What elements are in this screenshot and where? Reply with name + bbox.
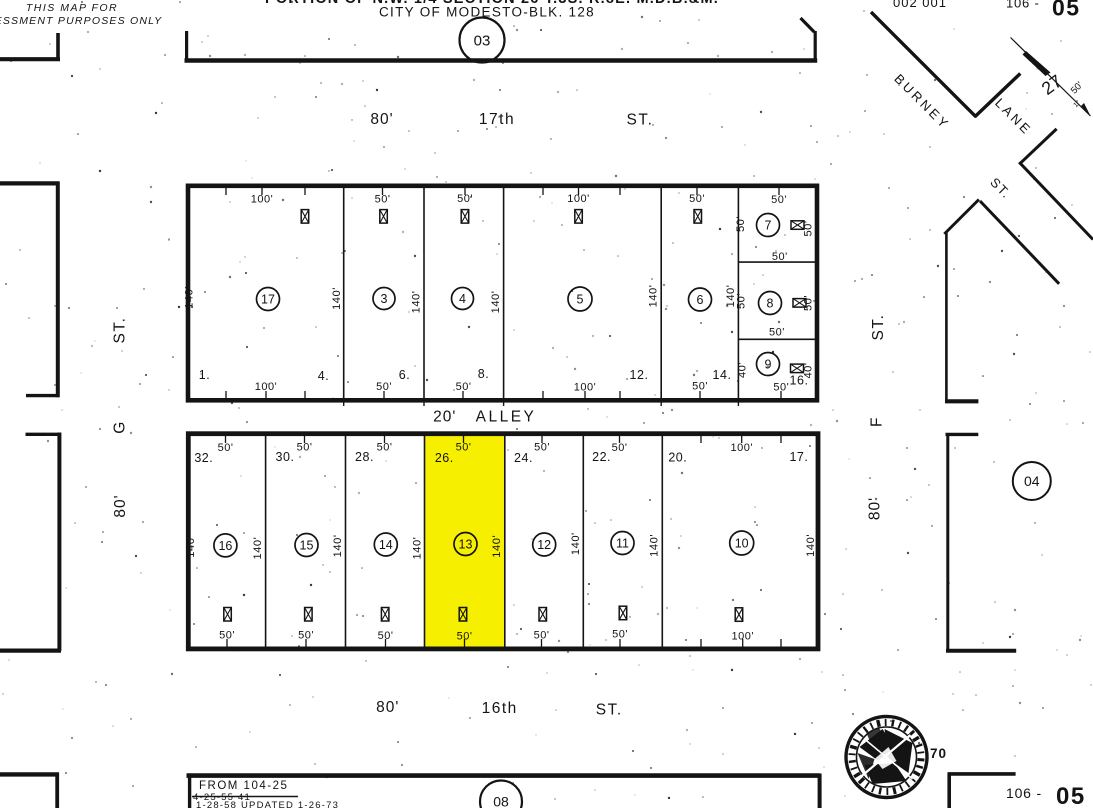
svg-text:14.: 14.: [713, 368, 732, 382]
svg-text:30.: 30.: [276, 450, 295, 464]
svg-text:32.: 32.: [194, 451, 213, 465]
svg-text:50': 50': [692, 381, 708, 393]
svg-text:13: 13: [459, 538, 473, 552]
svg-text:100': 100': [251, 194, 273, 206]
svg-text:FROM 104-25: FROM 104-25: [199, 780, 288, 792]
svg-text:50': 50': [218, 442, 234, 454]
svg-text:50': 50': [375, 194, 391, 206]
svg-text:140': 140': [184, 286, 196, 309]
svg-text:1-28-58 UPDATED 1-26-73: 1-28-58 UPDATED 1-26-73: [196, 800, 339, 808]
svg-text:50': 50': [457, 631, 473, 643]
svg-text:ST.: ST.: [596, 702, 623, 719]
svg-text:22.: 22.: [592, 450, 611, 464]
svg-text:4.: 4.: [318, 369, 329, 383]
svg-text:50': 50': [378, 630, 394, 642]
svg-text:12.: 12.: [630, 368, 649, 382]
svg-text:140': 140': [649, 534, 661, 557]
svg-text:70: 70: [930, 746, 947, 761]
svg-text:6.: 6.: [399, 368, 410, 382]
svg-text:11: 11: [616, 537, 629, 551]
svg-text:8.: 8.: [478, 367, 489, 381]
svg-text:80': 80': [867, 497, 884, 520]
svg-text:80': 80': [370, 111, 393, 128]
svg-text:6: 6: [697, 293, 704, 307]
svg-text:50': 50': [297, 442, 313, 454]
svg-text:50': 50': [612, 629, 628, 641]
svg-text:26.: 26.: [435, 451, 454, 465]
svg-text:100': 100': [730, 442, 752, 454]
svg-text:4: 4: [459, 292, 466, 306]
svg-text:140': 140': [648, 285, 660, 308]
svg-text:17: 17: [261, 293, 275, 307]
svg-text:F: F: [869, 416, 886, 427]
svg-text:140': 140': [332, 534, 344, 557]
svg-text:140': 140': [411, 291, 423, 314]
svg-text:17.: 17.: [789, 450, 808, 464]
svg-text:50': 50': [735, 216, 747, 232]
svg-text:ALLEY: ALLEY: [476, 409, 537, 426]
svg-text:50': 50': [773, 382, 789, 394]
svg-text:16: 16: [218, 539, 232, 553]
svg-text:50': 50': [769, 327, 785, 339]
svg-text:THIS MAP FOR: THIS MAP FOR: [26, 2, 118, 14]
svg-text:40': 40': [737, 362, 749, 378]
svg-text:12: 12: [537, 538, 551, 552]
svg-text:50': 50': [456, 381, 472, 393]
svg-text:140': 140': [805, 534, 817, 557]
svg-text:50': 50': [534, 442, 550, 454]
svg-text:50': 50': [298, 630, 314, 642]
svg-text:80': 80': [112, 494, 129, 517]
svg-text:140': 140': [252, 537, 264, 560]
svg-text:28.: 28.: [355, 450, 374, 464]
svg-text:20': 20': [433, 409, 456, 426]
svg-text:100': 100': [567, 193, 589, 205]
svg-text:50': 50': [772, 251, 788, 263]
svg-text:ST.: ST.: [870, 314, 887, 341]
svg-text:100': 100': [574, 382, 596, 394]
svg-text:14: 14: [379, 538, 393, 552]
svg-text:G: G: [112, 420, 129, 434]
svg-text:140': 140': [412, 537, 424, 560]
svg-text:5: 5: [577, 293, 584, 307]
svg-text:24.: 24.: [514, 451, 533, 465]
svg-text:50': 50': [612, 442, 628, 454]
svg-text:140': 140': [490, 291, 502, 314]
svg-text:50': 50': [736, 293, 748, 309]
svg-text:50': 50': [803, 295, 815, 311]
svg-text:50': 50': [219, 630, 235, 642]
svg-text:50': 50': [376, 381, 392, 393]
svg-text:20.: 20.: [668, 451, 687, 465]
svg-text:05: 05: [1052, 0, 1081, 21]
svg-text:16th: 16th: [482, 700, 518, 717]
svg-text:ASSESSMENT PURPOSES ONLY: ASSESSMENT PURPOSES ONLY: [0, 15, 162, 27]
svg-text:7: 7: [765, 219, 772, 233]
svg-text:08: 08: [493, 794, 509, 808]
svg-text:100': 100': [731, 631, 753, 643]
svg-text:ST.: ST.: [627, 112, 654, 129]
svg-text:50': 50': [457, 193, 473, 205]
svg-text:05: 05: [1056, 783, 1086, 808]
svg-text:8: 8: [767, 297, 774, 311]
svg-text:ST.: ST.: [112, 317, 129, 344]
svg-text:50': 50': [689, 193, 705, 205]
svg-text:15: 15: [300, 539, 314, 553]
svg-text:50': 50': [534, 630, 550, 642]
svg-text:140': 140': [491, 535, 503, 558]
svg-text:03: 03: [474, 32, 491, 49]
svg-text:17th: 17th: [479, 111, 515, 128]
svg-text:16.: 16.: [790, 374, 809, 388]
svg-text:50': 50': [771, 194, 787, 206]
svg-text:04: 04: [1024, 473, 1040, 489]
svg-text:100': 100': [255, 381, 277, 393]
svg-text:3: 3: [381, 292, 388, 306]
svg-text:002 001: 002 001: [893, 0, 947, 10]
svg-text:106 -: 106 -: [1006, 785, 1042, 801]
svg-text:50': 50': [377, 442, 393, 454]
svg-text:80': 80': [376, 699, 399, 716]
svg-text:10: 10: [735, 537, 749, 551]
svg-text:9: 9: [765, 358, 772, 372]
svg-text:140': 140': [185, 535, 197, 558]
svg-text:50': 50': [456, 442, 472, 454]
svg-text:1.: 1.: [199, 368, 210, 382]
svg-text:106 -: 106 -: [1006, 0, 1040, 11]
svg-text:140': 140': [331, 287, 343, 310]
svg-text:140': 140': [570, 532, 582, 555]
